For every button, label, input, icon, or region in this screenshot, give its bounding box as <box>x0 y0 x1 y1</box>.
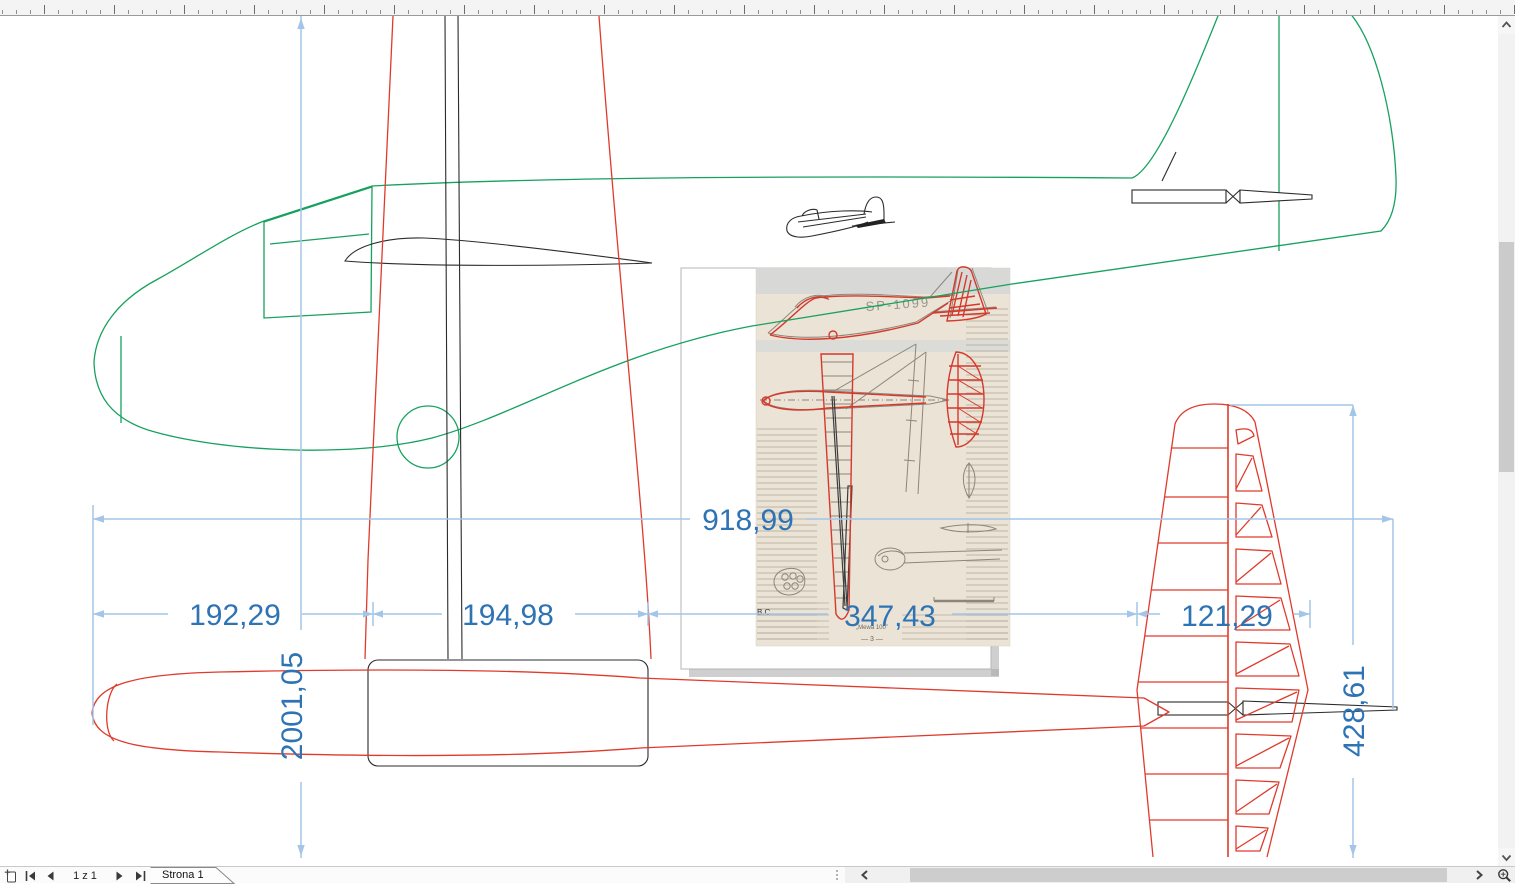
last-page-icon <box>134 870 147 882</box>
dim-text-192[interactable]: 192,29 <box>189 599 281 632</box>
page-tab-strona-1[interactable]: Strona 1 <box>150 867 238 884</box>
page-tab-label: Strona 1 <box>162 869 204 881</box>
navigator-button[interactable] <box>1494 867 1515 883</box>
horizontal-scroll-thumb[interactable] <box>910 868 1447 882</box>
next-page-button[interactable] <box>112 869 128 883</box>
fuselage-top-view <box>92 670 1169 755</box>
dim-text-347[interactable]: 347,43 <box>844 600 936 633</box>
wing-edge-right <box>599 16 651 659</box>
add-page-start-button[interactable] <box>2 869 18 883</box>
horizontal-ruler[interactable] <box>0 0 1515 16</box>
scan-text-column-right <box>966 306 1008 640</box>
previous-page-button[interactable] <box>42 869 58 883</box>
page-indicator: 1 z 1 <box>68 870 102 882</box>
wing-edge-left <box>365 16 393 659</box>
scroll-down-button[interactable] <box>1498 848 1515 866</box>
first-page-button[interactable] <box>22 869 38 883</box>
scan-page-number: — 3 — <box>861 636 883 643</box>
scanned-plan-image[interactable]: SP-1099 <box>756 267 1010 646</box>
chevron-left-icon <box>859 869 871 881</box>
chevron-up-icon <box>1500 19 1513 32</box>
scroll-left-button[interactable] <box>852 867 878 883</box>
scroll-right-button[interactable] <box>1466 867 1492 883</box>
previous-page-icon <box>45 870 55 882</box>
tailplane-section-top <box>1132 190 1312 203</box>
wing-spar-lines <box>445 16 462 659</box>
drawing-svg: SP-1099 <box>0 16 1498 866</box>
first-page-icon <box>24 870 37 882</box>
last-page-button[interactable] <box>132 869 148 883</box>
status-bar: 1 z 1 Strona 1 <box>0 866 1515 883</box>
vertical-scroll-thumb[interactable] <box>1499 242 1514 472</box>
canopy-outline <box>264 187 372 318</box>
chevron-down-icon <box>1500 851 1513 864</box>
dim-text-121[interactable]: 121,29 <box>1181 600 1273 633</box>
drawing-canvas[interactable]: SP-1099 <box>0 16 1498 866</box>
dim-text-2001[interactable]: 2001,05 <box>276 652 309 760</box>
navigator-magnifier-icon <box>1497 868 1512 883</box>
small-glider-silhouette <box>787 197 895 237</box>
horizontal-scrollbar[interactable] <box>884 867 1468 883</box>
scroll-up-button[interactable] <box>1498 16 1515 34</box>
next-page-icon <box>115 870 125 882</box>
chevron-right-icon <box>1473 869 1485 881</box>
dim-text-194[interactable]: 194,98 <box>462 599 554 632</box>
wing-airfoil-section <box>345 238 652 265</box>
add-page-icon <box>4 869 17 883</box>
pane-splitter-handle[interactable] <box>833 870 841 882</box>
margin-note-text: B.C <box>757 608 771 617</box>
wheel-circle <box>397 406 459 468</box>
dim-text-428[interactable]: 428,61 <box>1338 665 1371 757</box>
page-navigation: 1 z 1 <box>2 868 168 883</box>
dim-text-918[interactable]: 918,99 <box>702 504 794 537</box>
ruler-major-ticks <box>44 5 1515 14</box>
vertical-scrollbar[interactable] <box>1498 16 1515 866</box>
